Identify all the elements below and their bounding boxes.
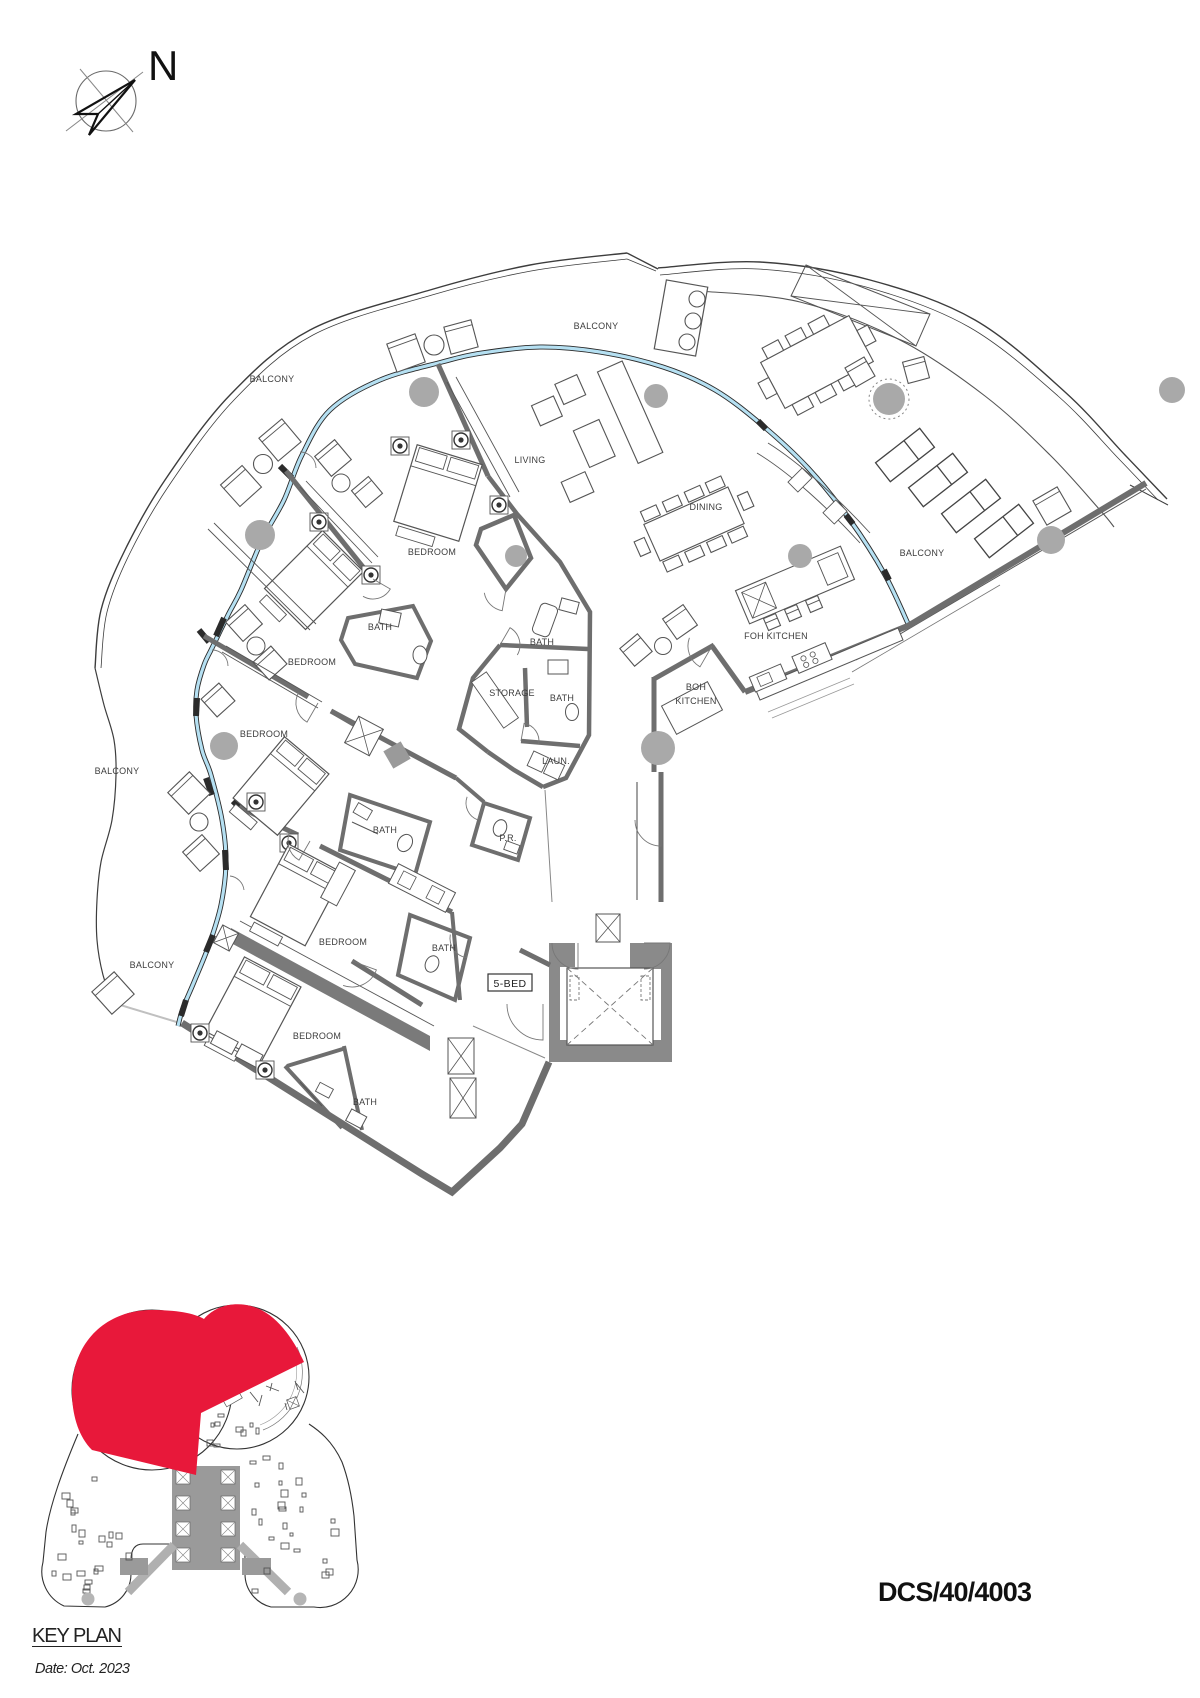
svg-text:BATH: BATH: [373, 825, 397, 835]
svg-text:LIVING: LIVING: [514, 455, 545, 465]
svg-text:BEDROOM: BEDROOM: [288, 657, 336, 667]
svg-text:BEDROOM: BEDROOM: [408, 547, 456, 557]
svg-text:BEDROOM: BEDROOM: [293, 1031, 341, 1041]
svg-text:Date: Oct. 2023: Date: Oct. 2023: [35, 1661, 130, 1677]
svg-text:BOH: BOH: [686, 682, 706, 692]
svg-text:BALCONY: BALCONY: [574, 321, 619, 331]
svg-text:BEDROOM: BEDROOM: [319, 937, 367, 947]
svg-text:N: N: [148, 42, 178, 89]
svg-text:KITCHEN: KITCHEN: [675, 696, 716, 706]
svg-text:BATH: BATH: [530, 637, 554, 647]
svg-text:BALCONY: BALCONY: [95, 766, 140, 776]
svg-text:P.R.: P.R.: [499, 833, 516, 843]
svg-text:5-BED: 5-BED: [494, 978, 527, 990]
svg-text:DCS/40/4003: DCS/40/4003: [878, 1577, 1032, 1607]
svg-text:FOH KITCHEN: FOH KITCHEN: [744, 631, 808, 641]
svg-text:BATH: BATH: [368, 622, 392, 632]
svg-text:KEY PLAN: KEY PLAN: [32, 1625, 122, 1647]
svg-text:BALCONY: BALCONY: [900, 548, 945, 558]
svg-text:BATH: BATH: [550, 693, 574, 703]
svg-text:STORAGE: STORAGE: [489, 688, 535, 698]
svg-text:BATH: BATH: [353, 1097, 377, 1107]
svg-text:BATH: BATH: [432, 943, 456, 953]
svg-text:BALCONY: BALCONY: [250, 374, 295, 384]
svg-text:LAUN.: LAUN.: [542, 756, 570, 766]
svg-text:DINING: DINING: [690, 502, 723, 512]
svg-text:BEDROOM: BEDROOM: [240, 729, 288, 739]
svg-text:BALCONY: BALCONY: [130, 960, 175, 970]
